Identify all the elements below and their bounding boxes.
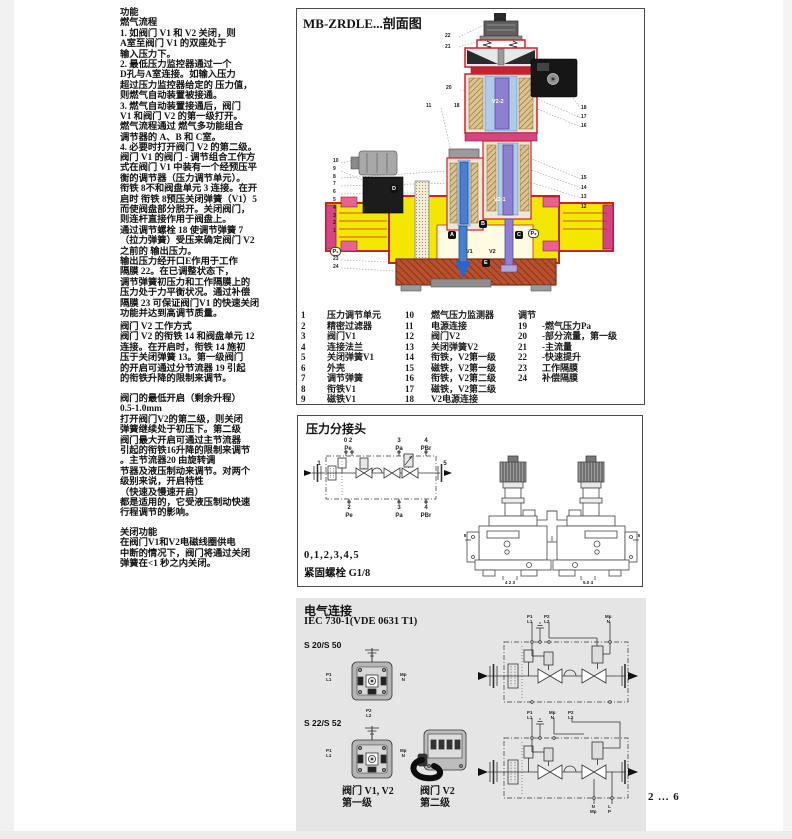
callout-number: 5 bbox=[333, 197, 339, 205]
parts-row: 19 -燃气压力Pa bbox=[518, 321, 644, 332]
parts-row: 7 调节弹簧 bbox=[301, 373, 403, 384]
callout-number: 3 bbox=[333, 213, 339, 221]
part-number: 5 bbox=[301, 352, 327, 363]
part-number: 4 bbox=[301, 342, 327, 353]
callout-number: 14 bbox=[581, 184, 587, 194]
svg-text:4 2 3: 4 2 3 bbox=[505, 580, 516, 585]
wiring-circuit-s20 bbox=[474, 612, 642, 716]
part-label: -燃气压力Pa bbox=[542, 321, 591, 332]
part-number: 13 bbox=[405, 342, 431, 353]
parts-row: 6 外壳 bbox=[301, 363, 403, 374]
parts-row: 21 -主流量 bbox=[518, 342, 644, 353]
valve-unit-right bbox=[553, 456, 637, 576]
part-number: 15 bbox=[405, 363, 431, 374]
electrical-panel: 电气连接 IEC 730-1(VDE 0631 T1) S 20/S 50 S … bbox=[296, 598, 646, 831]
parts-row: 20 -部分流量，第一级 bbox=[518, 331, 644, 342]
page-left-margin bbox=[0, 0, 14, 839]
c2-terminal-nmp: N Mp bbox=[590, 804, 597, 814]
c1-terminal-mpn: Mp N bbox=[605, 614, 612, 624]
callout-number: 8 bbox=[333, 174, 339, 182]
din-connector-s20 bbox=[348, 646, 396, 706]
parts-row: 11 电源连接 bbox=[405, 321, 517, 332]
parts-list-col3-header: 调节 bbox=[518, 310, 644, 321]
part-number: 7 bbox=[301, 373, 327, 384]
label-v1: V1 bbox=[466, 249, 473, 255]
part-number: 17 bbox=[405, 384, 431, 395]
callout-number: 22 bbox=[445, 31, 451, 42]
callout-number: 7 bbox=[333, 181, 339, 189]
parts-list-col1: 1 压力调节单元 2 精密过滤器 3 阀门V1 4 连接法兰 5 关闭弹簧V1 … bbox=[301, 310, 403, 405]
callout-number: 23 bbox=[333, 255, 339, 263]
closing-function-text: 关闭功能 在阀门V1和V2电磁线圈供电 中断的情况下，阀门将通过关闭 弹簧在<1… bbox=[120, 528, 304, 570]
part-label: -主流量 bbox=[542, 342, 572, 353]
svg-text:5: 5 bbox=[443, 461, 447, 467]
label-a: A bbox=[448, 231, 456, 239]
pressure-regulator-tower bbox=[465, 13, 537, 74]
callout-number: 17 bbox=[581, 113, 587, 122]
callouts-left-column: 10987654321 bbox=[333, 158, 339, 236]
callouts-left-bottom: 2324 bbox=[333, 255, 339, 271]
callout-18-left: 18 bbox=[454, 103, 460, 109]
part-label: 电源连接 bbox=[431, 321, 467, 332]
part-label: 精密过滤器 bbox=[327, 321, 372, 332]
svg-text:Pe: Pe bbox=[345, 513, 353, 519]
valve-outline-drawings: 5 5 4 2 3 5.0 4 bbox=[463, 456, 641, 584]
parts-row: 15 磁铁，V2第一级 bbox=[405, 363, 517, 374]
part-label: 阀门V2 bbox=[431, 331, 460, 342]
part-number: 19 bbox=[518, 321, 542, 332]
callouts-top-left: 2221 bbox=[445, 31, 451, 53]
parts-row: 5 关闭弹簧V1 bbox=[301, 352, 403, 363]
callouts-right-mid: 15141312 bbox=[581, 174, 587, 212]
label-b: B bbox=[479, 220, 487, 228]
part-label: 外壳 bbox=[327, 363, 345, 374]
part-label: 补偿隔膜 bbox=[542, 373, 578, 384]
part-number: 9 bbox=[301, 394, 327, 405]
part-number: 18 bbox=[405, 394, 431, 405]
svg-text:5: 5 bbox=[638, 533, 641, 538]
wiring-circuit-s22 bbox=[474, 708, 642, 812]
part-label: 关闭弹簧V2 bbox=[431, 342, 478, 353]
callout-number: 24 bbox=[333, 263, 339, 271]
conn2-left-label: P1 L1 bbox=[326, 748, 332, 758]
svg-text:Pa: Pa bbox=[395, 513, 403, 519]
bracket-mid bbox=[547, 536, 557, 542]
pressure-taps-panel: 压力分接头 0 2Pe 3Pa 4PBr 2Pe 3Pa 4PBr 1 5 bbox=[297, 415, 643, 587]
parts-row: 10 燃气压力监测器 bbox=[405, 310, 517, 321]
flow-schematic: 0 2Pe 3Pa 4PBr 2Pe 3Pa 4PBr 1 5 bbox=[302, 432, 457, 544]
part-label: 磁铁V1 bbox=[327, 394, 356, 405]
part-number: 12 bbox=[405, 331, 431, 342]
electrical-standard: IEC 730-1(VDE 0631 T1) bbox=[304, 616, 417, 627]
parts-list-col2: 10 燃气压力监测器 11 电源连接 12 阀门V2 13 关闭弹簧V2 14 … bbox=[405, 310, 517, 405]
label-v2-1: V2-1 bbox=[494, 197, 506, 203]
page-number: 2 ... 6 bbox=[648, 791, 680, 803]
parts-row: 23 工作隔膜 bbox=[518, 363, 644, 374]
label-d: D bbox=[390, 185, 398, 193]
label-p2: P₂ bbox=[528, 229, 539, 238]
parts-row: 8 衔铁V1 bbox=[301, 384, 403, 395]
callout-number: 21 bbox=[445, 42, 451, 53]
part-number: 1 bbox=[301, 310, 327, 321]
callout-number: 2 bbox=[333, 220, 339, 228]
c2-terminal-p2l2: P2 L2 bbox=[568, 710, 574, 720]
part-label: 磁铁，V2第二级 bbox=[431, 384, 496, 395]
bottom-plate bbox=[396, 259, 556, 291]
model-s20-s50: S 20/S 50 bbox=[304, 640, 341, 650]
bracket-top2 bbox=[547, 511, 567, 520]
label-e: E bbox=[482, 259, 490, 267]
part-number: 3 bbox=[301, 331, 327, 342]
label-v2-2: V2-2 bbox=[492, 99, 504, 105]
schematic-lines bbox=[304, 451, 452, 503]
part-number: 6 bbox=[301, 363, 327, 374]
valve-unit-left bbox=[467, 456, 551, 576]
part-label: 磁铁，V2第一级 bbox=[431, 363, 496, 374]
page-right-margin bbox=[783, 0, 792, 839]
part-number: 23 bbox=[518, 363, 542, 374]
callout-number: 10 bbox=[333, 158, 339, 166]
parts-row: 22 -快速提升 bbox=[518, 352, 644, 363]
parts-row: 1 压力调节单元 bbox=[301, 310, 403, 321]
part-number: 21 bbox=[518, 342, 542, 353]
callout-number: 18 bbox=[581, 104, 587, 113]
callout-number: 15 bbox=[581, 174, 587, 184]
svg-text:3: 3 bbox=[397, 505, 401, 511]
label-p1: P₁ bbox=[330, 247, 341, 256]
part-label: 燃气压力监测器 bbox=[431, 310, 494, 321]
part-label: V2电源连接 bbox=[431, 394, 478, 405]
parts-row: 9 磁铁V1 bbox=[301, 394, 403, 405]
tap-labels: 0 2Pe 3Pa 4PBr 2Pe 3Pa 4PBr 1 5 bbox=[317, 438, 447, 519]
din-connector-s22 bbox=[348, 724, 396, 784]
part-number: 2 bbox=[301, 321, 327, 332]
model-s22-s52: S 22/S 52 bbox=[304, 718, 341, 728]
cable-connector-v2 bbox=[408, 724, 472, 782]
bracket-top bbox=[537, 511, 557, 520]
parts-row: 17 磁铁，V2第二级 bbox=[405, 384, 517, 395]
minimum-opening-text: 阀门的最低开启（剩余升程） 0.5-1.0mm 打开阀门V2的第二级，则关闭 弹… bbox=[120, 394, 304, 519]
v2-second-stage-coil bbox=[465, 74, 537, 141]
svg-text:PBr: PBr bbox=[421, 513, 432, 519]
part-number: 11 bbox=[405, 321, 431, 332]
callout-number: 6 bbox=[333, 189, 339, 197]
c1-terminal-p2l2: P2 L2 bbox=[544, 614, 550, 624]
svg-text:4: 4 bbox=[424, 438, 428, 444]
parts-row: 2 精密过滤器 bbox=[301, 321, 403, 332]
label-c: C bbox=[515, 231, 523, 239]
conn1-right-label: Mp N bbox=[400, 672, 407, 682]
conn2-right-label: Mp N bbox=[400, 748, 407, 758]
parts-row: 12 阀门V2 bbox=[405, 331, 517, 342]
callout-number: 13 bbox=[581, 193, 587, 203]
parts-row: 24 补偿隔膜 bbox=[518, 373, 644, 384]
svg-text:4: 4 bbox=[424, 505, 428, 511]
document-page: { "colors":{"body_yellow":"#f3e600","cas… bbox=[0, 0, 792, 839]
part-number: 10 bbox=[405, 310, 431, 321]
svg-text:3: 3 bbox=[397, 438, 401, 444]
taps-note-thread: 紧固螺栓 G1/8 bbox=[304, 565, 370, 580]
part-label: -部分流量，第一级 bbox=[542, 331, 617, 342]
callout-number: 4 bbox=[333, 205, 339, 213]
part-label: -快速提升 bbox=[542, 352, 581, 363]
svg-text:2: 2 bbox=[347, 505, 351, 511]
part-label: 工作隔膜 bbox=[542, 363, 578, 374]
c2-terminal-p1l1: P1 L1 bbox=[527, 710, 533, 720]
svg-text:5: 5 bbox=[464, 533, 467, 538]
parts-row: 14 衔铁，V2第一级 bbox=[405, 352, 517, 363]
callout-number: 1 bbox=[333, 228, 339, 236]
parts-list-col3: 19 -燃气压力Pa 20 -部分流量，第一级 21 -主流量 22 -快速提升… bbox=[518, 321, 644, 384]
c2-terminal-lp: L P bbox=[608, 804, 611, 814]
parts-row: 13 关闭弹簧V2 bbox=[405, 342, 517, 353]
cross-section-panel: MB-ZRDLE...剖面图 bbox=[296, 8, 645, 405]
valve-v2-operation-text: 阀门 V2 工作方式 阀门 V2 的衔铁 14 和阀盘单元 12 连接。在开启时… bbox=[120, 322, 304, 384]
callout-number: 9 bbox=[333, 166, 339, 174]
part-label: 衔铁V1 bbox=[327, 384, 356, 395]
part-label: 调节弹簧 bbox=[327, 373, 363, 384]
function-gas-flow-text: 功能 燃气流程 1. 如阀门 V1 和 V2 关闭，则 A室至阀门 V1 的双座… bbox=[120, 8, 304, 154]
parts-row: 4 连接法兰 bbox=[301, 342, 403, 353]
part-label: 关闭弹簧V1 bbox=[327, 352, 374, 363]
valve-v1-operation-text: 阀门 V1 的阀门 - 调节组合工作方 式在阀门 V1 中装有一个经预压平 衡的… bbox=[120, 153, 304, 320]
part-label: 衔铁，V2第一级 bbox=[431, 352, 496, 363]
part-label: 压力调节单元 bbox=[327, 310, 381, 321]
svg-text:5.0 4: 5.0 4 bbox=[583, 580, 594, 585]
svg-text:0 2: 0 2 bbox=[344, 438, 353, 444]
part-number: 14 bbox=[405, 352, 431, 363]
c1-terminal-p1l1: P1 L1 bbox=[527, 614, 533, 624]
callout-20: 20 bbox=[446, 85, 452, 91]
caption-valve-second-stage: 阀门 V2 第二级 bbox=[420, 786, 455, 809]
part-label: 衔铁，V2第二级 bbox=[431, 373, 496, 384]
callouts-right-top: 181716 bbox=[581, 104, 587, 131]
taps-note-screws: 0,1,2,3,4,5 bbox=[304, 550, 360, 561]
part-number: 16 bbox=[405, 373, 431, 384]
conn1-bottom-label: P2 L2 bbox=[366, 708, 372, 718]
callout-11: 11 bbox=[426, 103, 431, 109]
c2-terminal-mpn: Mp N bbox=[549, 710, 556, 720]
parts-row: 18 V2电源连接 bbox=[405, 394, 517, 405]
part-number: 24 bbox=[518, 373, 542, 384]
page-bottom-margin bbox=[0, 831, 792, 839]
parts-row: 3 阀门V1 bbox=[301, 331, 403, 342]
callout-number: 12 bbox=[581, 203, 587, 213]
conn1-left-label: P1 L1 bbox=[326, 672, 332, 682]
callout-number: 16 bbox=[581, 122, 587, 131]
part-label: 连接法兰 bbox=[327, 342, 363, 353]
caption-valves-first-stage: 阀门 V1, V2 第一级 bbox=[342, 786, 394, 809]
parts-row: 16 衔铁，V2第二级 bbox=[405, 373, 517, 384]
part-label: 阀门V1 bbox=[327, 331, 356, 342]
label-v2: V2 bbox=[489, 249, 496, 255]
part-number: 20 bbox=[518, 331, 542, 342]
part-number: 22 bbox=[518, 352, 542, 363]
part-number: 8 bbox=[301, 384, 327, 395]
gas-pressure-monitor bbox=[531, 59, 577, 97]
adjustment-header: 调节 bbox=[518, 310, 644, 321]
